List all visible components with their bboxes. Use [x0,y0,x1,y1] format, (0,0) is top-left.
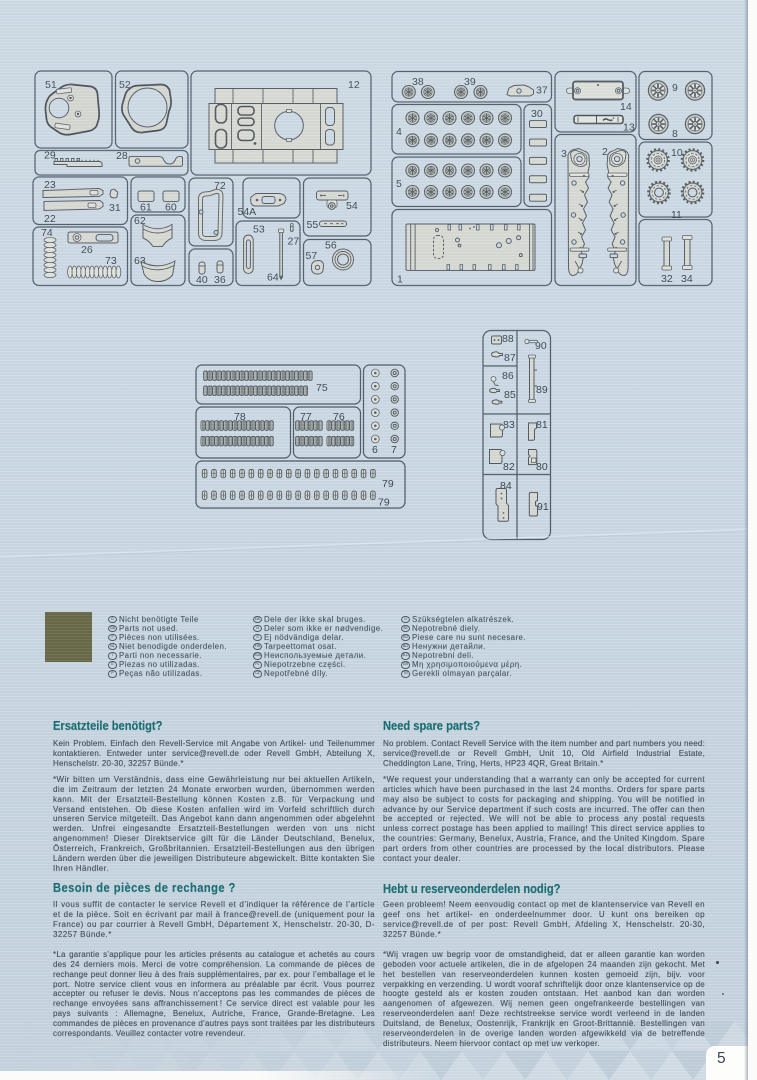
svg-text:22: 22 [44,213,56,225]
svg-text:4: 4 [396,126,402,138]
svg-text:27: 27 [288,236,300,248]
svg-text:91: 91 [537,501,549,513]
svg-text:64: 64 [267,272,279,284]
svg-text:54A: 54A [238,206,257,218]
svg-text:1: 1 [397,274,403,286]
svg-text:8: 8 [672,128,678,140]
svg-text:79: 79 [382,478,394,490]
svg-text:9: 9 [672,82,678,94]
svg-text:40: 40 [196,274,208,286]
svg-text:57: 57 [306,250,318,262]
svg-text:6: 6 [372,444,378,456]
svg-text:54: 54 [346,200,358,212]
svg-text:26: 26 [81,244,93,256]
svg-text:51: 51 [45,79,57,91]
svg-text:23: 23 [44,179,56,191]
svg-text:79: 79 [378,497,390,509]
svg-text:3: 3 [561,148,567,160]
svg-text:39: 39 [464,76,476,88]
svg-text:55: 55 [307,219,319,231]
svg-text:73: 73 [105,255,117,267]
svg-text:32: 32 [661,273,673,285]
svg-text:37: 37 [536,85,548,97]
svg-text:10: 10 [671,147,683,159]
svg-text:60: 60 [165,202,177,214]
svg-text:7: 7 [391,444,397,456]
svg-text:87: 87 [504,352,516,364]
svg-text:83: 83 [503,419,515,431]
svg-text:28: 28 [116,150,128,162]
svg-text:31: 31 [109,202,121,214]
svg-text:13: 13 [623,122,635,134]
svg-text:56: 56 [325,240,337,252]
svg-text:30: 30 [531,108,543,120]
svg-text:53: 53 [253,224,265,236]
svg-text:80: 80 [536,461,548,473]
svg-text:82: 82 [503,461,515,473]
svg-text:88: 88 [502,333,514,345]
svg-text:29: 29 [44,150,56,162]
svg-text:36: 36 [214,274,226,286]
svg-text:89: 89 [536,384,548,396]
svg-text:14: 14 [620,101,632,113]
svg-text:12: 12 [348,79,360,91]
svg-text:34: 34 [681,273,693,285]
svg-text:85: 85 [504,389,516,401]
svg-text:61: 61 [140,202,152,214]
svg-text:81: 81 [536,419,548,431]
svg-text:5: 5 [396,178,402,190]
svg-text:86: 86 [502,370,514,382]
svg-text:38: 38 [412,76,424,88]
svg-text:75: 75 [316,382,328,394]
